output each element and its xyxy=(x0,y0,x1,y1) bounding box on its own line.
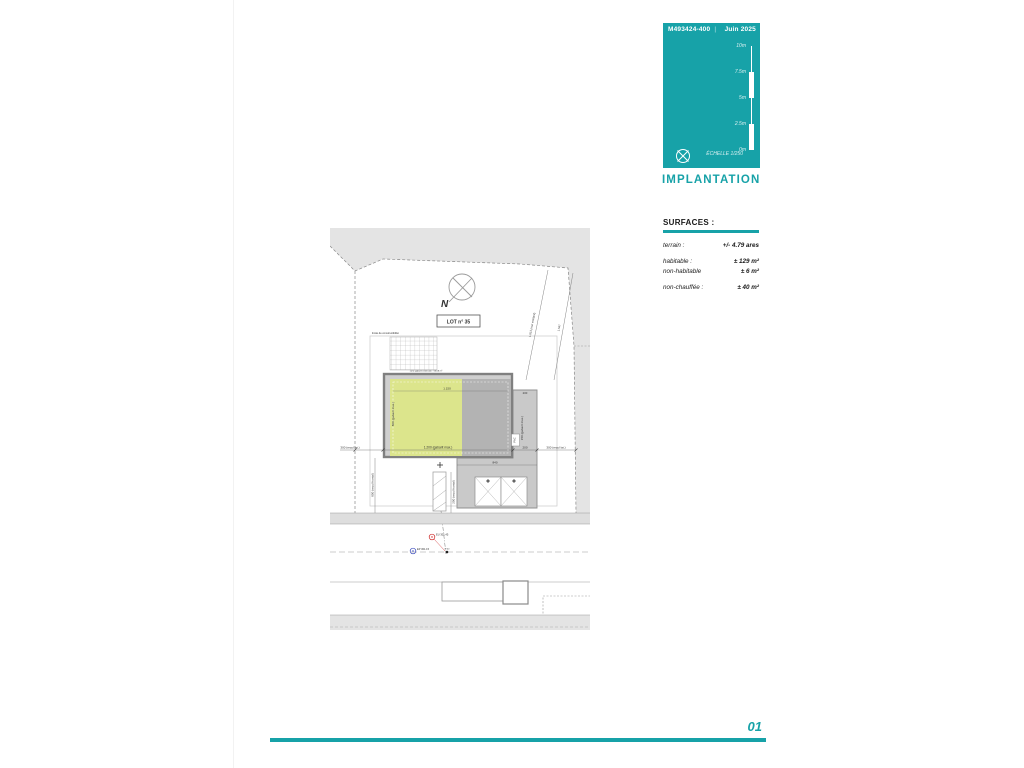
scale-bar xyxy=(749,46,754,150)
utility-blue-marker xyxy=(412,550,413,551)
title-block: M493424-400 | Juin 2025 10m 7.5m 5m 2.5m… xyxy=(663,23,760,168)
dim-carport-width: 840 xyxy=(492,461,497,465)
dim-ext-top: 200 xyxy=(523,391,528,395)
sheet-title: IMPLANTATION xyxy=(662,174,764,186)
surface-row-terrain: terrain : +/- 4.79 ares xyxy=(663,242,759,249)
sheet-edge-line xyxy=(233,0,234,768)
construction-zone-note: limite de constructibilité xyxy=(372,331,399,335)
scale-tick-5m: 5m xyxy=(739,95,746,101)
dim-bottom-width: 1.200 (gabarit max.) xyxy=(424,446,453,450)
dim-top-width: 1.150 xyxy=(443,387,451,391)
utility-black-label: Ø 40 xyxy=(445,549,451,551)
dim-left-height: 800 (gabarit max.) xyxy=(391,402,395,426)
page-number: 01 xyxy=(738,719,762,734)
north-letter: N xyxy=(441,299,449,310)
building-existing-area xyxy=(462,379,511,456)
opposite-building-annex xyxy=(503,581,528,604)
scale-caption-label: ÉCHELLE xyxy=(706,151,729,157)
title-block-header: M493424-400 | Juin 2025 xyxy=(668,26,756,33)
scale-caption-value: 1/250 xyxy=(730,151,743,157)
plan-sheet-page: M493424-400 | Juin 2025 10m 7.5m 5m 2.5m… xyxy=(0,0,1024,768)
dim-recul-frontal-left: 800 (recul frontal) xyxy=(371,473,375,497)
reference-separator: | xyxy=(714,26,716,33)
scale-bar-segment xyxy=(751,46,753,72)
surface-label: non-habitable xyxy=(663,268,701,275)
pac-label: PAC xyxy=(513,437,517,442)
surface-value: +/- 4.79 ares xyxy=(723,242,759,249)
dim-recul-lat-left: 300 (recul lat.) xyxy=(340,446,359,450)
surface-row-non-chauffee: non-chauffée : ± 40 m² xyxy=(663,284,759,291)
utility-black-marker xyxy=(446,551,449,554)
scale-bar-segment xyxy=(749,124,754,150)
utility-red-leader xyxy=(434,539,445,551)
surface-value: ± 129 m² xyxy=(734,258,759,265)
surface-row-non-habitable: non-habitable ± 6 m² xyxy=(663,268,759,275)
surface-row-habitable: habitable : ± 129 m² xyxy=(663,258,759,265)
scale-bar-segment xyxy=(751,98,753,124)
site-plan-drawing: limite de constructibilité N LOT n° 35 1… xyxy=(330,228,590,630)
surface-label: terrain : xyxy=(663,242,684,249)
surface-label: habitable : xyxy=(663,258,692,265)
dim-gap-right: 200 xyxy=(522,446,527,450)
dim-recul-lat-right: 300 (recul lat.) xyxy=(546,446,565,450)
opposite-parcel-dashed xyxy=(543,596,590,617)
drawing-reference: M493424-400 xyxy=(668,26,710,33)
extension-note: zone gabarit extension : 53.08 m² xyxy=(410,370,443,373)
compass-icon xyxy=(674,147,692,165)
utility-red-marker xyxy=(431,536,432,537)
surface-label: non-chauffée : xyxy=(663,284,703,291)
street-curb-band xyxy=(330,513,590,524)
surfaces-accent-rule xyxy=(663,230,759,233)
scale-tick-2-5m: 2.5m xyxy=(735,121,746,127)
scale-tick-7-5m: 7.5m xyxy=(735,69,746,75)
surfaces-heading: SURFACES : xyxy=(663,218,759,227)
drawing-date: Juin 2025 xyxy=(725,26,756,33)
terrace-grid xyxy=(390,337,437,370)
dim-wall-secondary: 1.547 xyxy=(556,324,561,332)
scale-tick-10m: 10m xyxy=(736,43,746,49)
dim-recul-frontal-mid: 200 (recul frontal) xyxy=(452,480,456,504)
surface-value: ± 6 m² xyxy=(741,268,759,275)
surfaces-panel: SURFACES : terrain : +/- 4.79 ares habit… xyxy=(663,218,759,291)
dim-right-height: 150 (gabarit max.) xyxy=(520,416,524,440)
utility-blue-label: EP 301.15 xyxy=(417,547,430,551)
footer-accent-line xyxy=(270,738,766,742)
building-extension-area xyxy=(390,379,462,456)
scale-caption: ÉCHELLE 1/250 xyxy=(706,151,743,157)
bottom-band xyxy=(330,615,590,630)
lot-label: LOT n° 35 xyxy=(447,320,471,326)
surface-value: ± 40 m² xyxy=(737,284,759,291)
scale-bar-segment xyxy=(749,72,754,98)
plus-marker xyxy=(437,462,443,468)
utility-red-label: EU 301.45 xyxy=(436,533,449,537)
